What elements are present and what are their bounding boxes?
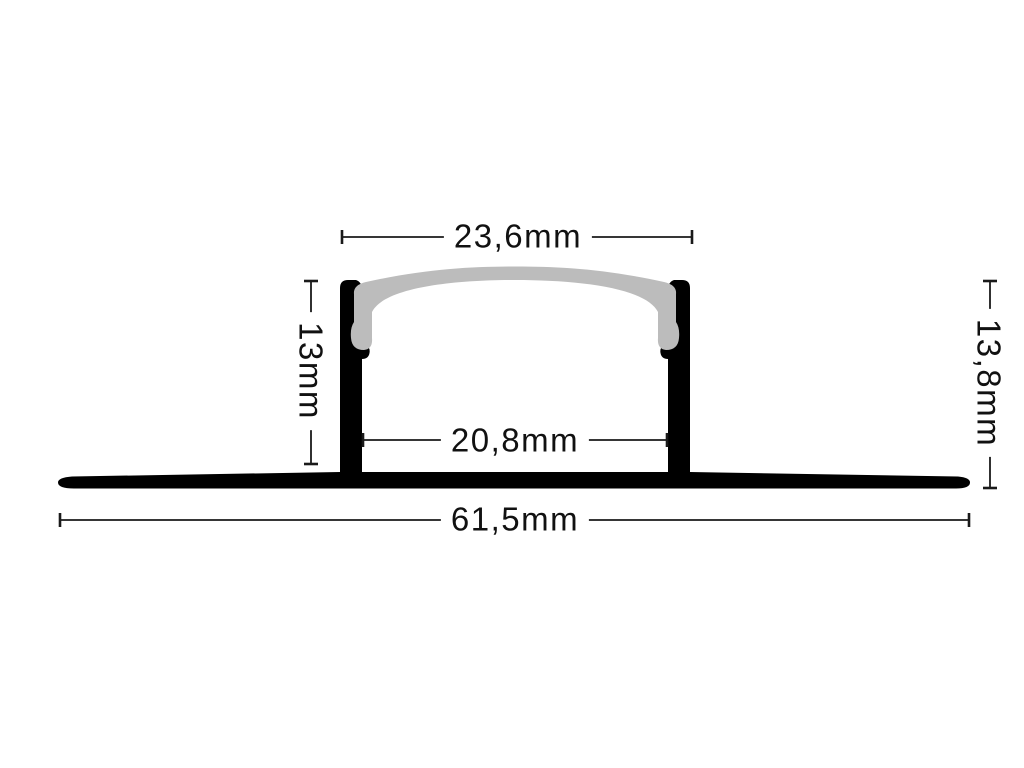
dimension-label-total-width: 61,5mm [441,501,589,538]
profile-base-flange [58,472,970,489]
dimension-label-top-width: 23,6mm [444,218,592,255]
dimension-label-left-height: 13mm [293,312,330,430]
diffuser-cover [351,267,679,351]
profile-drawing [0,0,1024,768]
profile-drawing-canvas: 23,6mm 20,8mm 61,5mm 13mm 13,8mm [0,0,1024,768]
dimension-label-inner-width: 20,8mm [441,422,589,459]
dimension-label-right-height: 13,8mm [971,309,1008,457]
